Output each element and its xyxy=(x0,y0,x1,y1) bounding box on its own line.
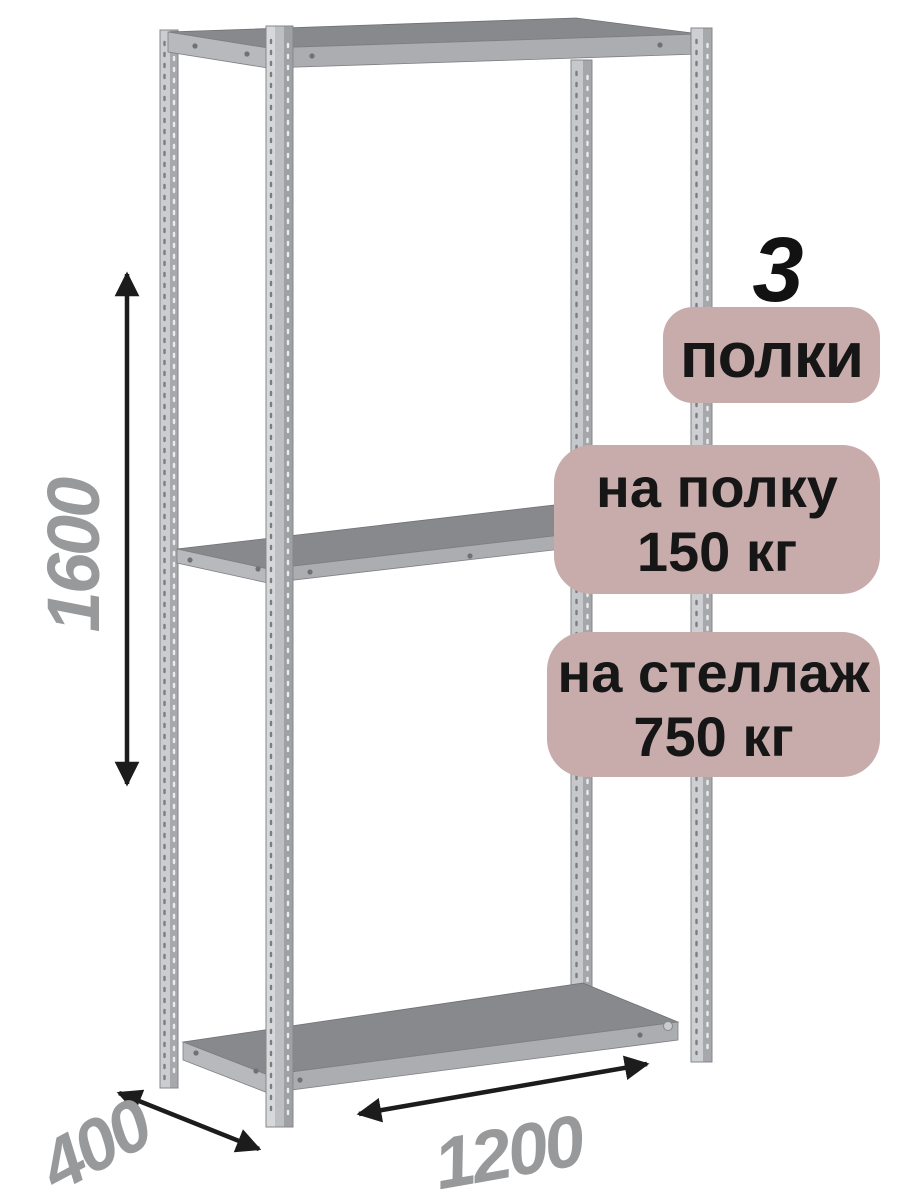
shelves-badge-label: полки xyxy=(680,319,863,392)
top-shelf xyxy=(168,18,700,68)
shelves-badge: полки xyxy=(663,307,880,403)
total-load-line1: на стеллаж xyxy=(557,641,869,705)
product-image: 1600 400 1200 3 полки на полку 150 кг на… xyxy=(0,0,900,1200)
total-load-badge: на стеллаж 750 кг xyxy=(547,632,880,777)
per-shelf-load-line1: на полку xyxy=(596,456,838,520)
shelving-rack-drawing xyxy=(0,0,900,1200)
post-front-left xyxy=(266,26,293,1127)
per-shelf-load-line2: 150 кг xyxy=(637,520,797,584)
bottom-shelf xyxy=(183,983,678,1093)
post-back-left xyxy=(160,30,178,1088)
shelf-count: 3 xyxy=(726,224,830,316)
height-dimension-label: 1600 xyxy=(37,480,111,633)
total-load-line2: 750 кг xyxy=(633,705,793,769)
per-shelf-load-badge: на полку 150 кг xyxy=(554,445,880,594)
